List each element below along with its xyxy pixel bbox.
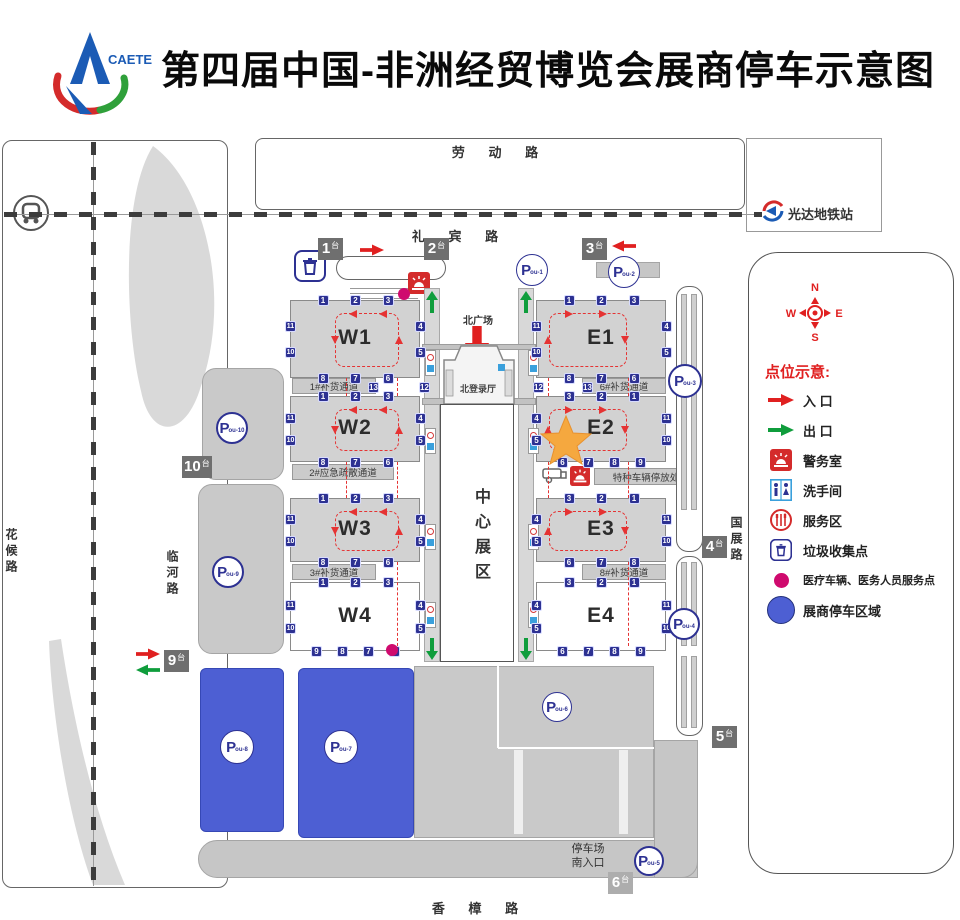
north-hall-building <box>442 344 516 406</box>
logo-text: CAETE <box>108 52 152 67</box>
route-arrow-icon <box>395 527 403 535</box>
route-arrow-icon <box>349 310 357 318</box>
parking-badge-p6: Pou-6 <box>542 692 572 722</box>
gate-6: 6台 <box>608 872 633 894</box>
dock-badge: 1 <box>318 493 329 504</box>
dock-badge: 1 <box>318 391 329 402</box>
dock-badge: 4 <box>415 413 426 424</box>
compass-e: E <box>835 308 842 320</box>
parking-badge-p10: Pou-10 <box>216 412 248 444</box>
dock-badge: 6 <box>564 557 575 568</box>
route-arrow-icon <box>599 310 607 318</box>
dock-badge: 8 <box>318 457 329 468</box>
parking-badge-p3: Pou-3 <box>668 364 702 398</box>
gate-9-suffix: 台 <box>177 652 185 663</box>
dock-badge: 5 <box>531 536 542 547</box>
dock-badge: 2 <box>350 391 361 402</box>
dock-badge: 1 <box>629 391 640 402</box>
route-arrow-icon <box>379 406 387 414</box>
dock-badge: 11 <box>285 321 296 332</box>
dock-badge: 3 <box>629 295 640 306</box>
dock-badge: 3 <box>383 493 394 504</box>
lot-divider <box>497 666 499 748</box>
route-arrow-icon <box>621 527 629 535</box>
legend-item: 医疗车辆、医务人员服务点 <box>759 565 949 595</box>
route-arrow-icon <box>379 310 387 318</box>
parking-badge-p2: Pou-2 <box>608 256 640 288</box>
dock-badge: 8 <box>609 646 620 657</box>
route-dash <box>397 462 398 498</box>
compass-s: S <box>811 332 818 343</box>
entry-arrow-cell <box>759 394 803 406</box>
road-label-xiangzhang: 香 樟 路 <box>380 898 580 917</box>
route-dash <box>548 462 549 498</box>
dock-badge: 11 <box>285 600 296 611</box>
service-area-icon <box>427 528 434 535</box>
restroom-icon <box>427 617 434 624</box>
hall-w2-route <box>335 409 399 451</box>
dock-badge: 9 <box>311 646 322 657</box>
gate-10: 10台 <box>182 456 212 478</box>
legend-title: 点位示意: <box>765 361 830 382</box>
medical-point-dot <box>386 644 398 656</box>
metro-station-logo <box>760 198 786 224</box>
route-arrow-icon <box>379 508 387 516</box>
dock-badge: 10 <box>285 623 296 634</box>
dock-badge: 7 <box>596 373 607 384</box>
dock-badge: 8 <box>564 373 575 384</box>
restroom-icon <box>427 539 434 546</box>
page-title: 第四届中国-非洲经贸博览会展商停车示意图 <box>148 40 948 96</box>
bus-lane-bar <box>691 656 697 728</box>
p-sub: ou-10 <box>229 428 245 434</box>
gate-5: 5台 <box>712 726 737 748</box>
exit-arrow-icon <box>136 664 160 676</box>
dock-badge: 8 <box>318 373 329 384</box>
dock-badge: 12 <box>419 382 430 393</box>
restroom-service-icons <box>425 524 436 550</box>
gate-9-num: 9 <box>168 650 176 672</box>
south-entrance-label-2: 南入口 <box>560 854 616 870</box>
dock-badge: 8 <box>337 646 348 657</box>
dock-badge: 12 <box>533 382 544 393</box>
exit-arrow-up-icon <box>426 291 438 313</box>
gate-2-num: 2 <box>428 238 436 260</box>
legend-item-label: 出 口 <box>803 421 833 440</box>
parking-badge-p7: Pou-7 <box>324 730 358 764</box>
dock-badge: 2 <box>350 577 361 588</box>
exit-arrow-up-icon <box>520 291 532 313</box>
metro-rail-vertical <box>90 142 97 886</box>
dock-badge: 4 <box>531 600 542 611</box>
dock-badge: 10 <box>285 536 296 547</box>
legend-panel: N S W E 点位示意: 入 口出 口警务室洗手间服务区垃圾收集点医疗车辆、医… <box>748 252 954 874</box>
dock-badge: 4 <box>415 514 426 525</box>
dock-badge: 5 <box>415 435 426 446</box>
trash-point-icon <box>770 539 792 561</box>
dock-badge: 9 <box>635 646 646 657</box>
service-area-icon <box>427 606 434 613</box>
dock-badge: 8 <box>609 457 620 468</box>
route-arrow-icon <box>395 426 403 434</box>
restroom-cell <box>759 479 803 501</box>
compass-icon: N S W E <box>783 279 847 343</box>
legend-item: 展商停车区域 <box>759 595 949 625</box>
bus-lane-bar <box>681 656 687 728</box>
dock-badge: 2 <box>596 391 607 402</box>
gate-3: 3台 <box>582 238 607 260</box>
parking-area-cell <box>759 596 803 624</box>
legend-item: 警务室 <box>759 445 949 475</box>
dock-badge: 6 <box>383 557 394 568</box>
lot-stripe <box>619 750 628 834</box>
route-arrow-icon <box>599 406 607 414</box>
gate-3-suffix: 台 <box>595 240 603 251</box>
gate-4: 4台 <box>702 536 727 558</box>
parking-badge-p8: Pou-8 <box>220 730 254 764</box>
dock-badge: 3 <box>564 391 575 402</box>
dock-badge: 6 <box>629 373 640 384</box>
dock-badge: 5 <box>415 623 426 634</box>
metro-rail-horizontal <box>4 211 762 218</box>
entry-arrow-icon <box>360 244 384 256</box>
exit-arrow-icon <box>768 424 794 436</box>
dock-badge: 7 <box>350 373 361 384</box>
dock-badge: 8 <box>629 557 640 568</box>
star-marker <box>540 414 592 466</box>
dock-badge: 1 <box>318 577 329 588</box>
dock-badge: 2 <box>596 577 607 588</box>
strip-restock-8: 8#补货通道 <box>582 564 666 580</box>
route-dash <box>346 378 347 396</box>
p-sub: ou-4 <box>682 624 695 630</box>
route-arrow-icon <box>565 310 573 318</box>
road-label-huahou: 花候路 <box>3 528 20 576</box>
gate-10-suffix: 台 <box>202 458 210 469</box>
parking-badge-p9: Pou-9 <box>212 556 244 588</box>
dock-badge: 3 <box>383 295 394 306</box>
route-arrow-icon <box>621 336 629 344</box>
gate-1: 1台 <box>318 238 343 260</box>
restroom-service-icons <box>425 350 436 376</box>
p-sub: ou-6 <box>555 707 568 713</box>
dock-badge: 13 <box>368 382 379 393</box>
dock-badge: 10 <box>661 435 672 446</box>
dock-badge: 11 <box>661 600 672 611</box>
route-arrow-icon <box>565 508 573 516</box>
hall-w3: W3123876111045 <box>290 498 420 562</box>
legend-item: 服务区 <box>759 505 949 535</box>
legend-item: 出 口 <box>759 415 949 445</box>
restroom-icon <box>770 479 792 501</box>
service-area-icon <box>427 432 434 439</box>
p-sub: ou-5 <box>647 861 660 867</box>
p-sub: ou-8 <box>235 747 248 753</box>
route-arrow-icon <box>621 426 629 434</box>
dock-badge: 4 <box>415 600 426 611</box>
greenery-blobs <box>3 141 227 886</box>
north-plaza-label: 北广场 <box>448 312 508 327</box>
parking-badge-p5: Pou-5 <box>634 846 664 876</box>
legend-item-label: 洗手间 <box>803 481 842 500</box>
dock-badge: 4 <box>661 321 672 332</box>
dock-badge: 2 <box>350 295 361 306</box>
dock-badge: 7 <box>596 557 607 568</box>
dock-badge: 2 <box>596 295 607 306</box>
dock-badge: 6 <box>557 646 568 657</box>
trash-cell <box>759 539 803 561</box>
strip-restock-6: 6#补货通道 <box>582 378 666 394</box>
dock-badge: 1 <box>629 577 640 588</box>
dock-badge: 13 <box>582 382 593 393</box>
parking-map-page: CAETE 第四届中国-非洲经贸博览会展商停车示意图 花候路 劳 动 路 礼 宾… <box>0 0 960 920</box>
dock-badge: 10 <box>285 347 296 358</box>
legend-item-label: 服务区 <box>803 511 842 530</box>
gate-6-num: 6 <box>612 872 620 894</box>
route-arrow-icon <box>565 406 573 414</box>
dock-badge: 7 <box>350 557 361 568</box>
dock-badge: 3 <box>564 577 575 588</box>
caete-logo <box>40 22 144 118</box>
service-area-icon <box>770 509 792 531</box>
service-area-icon <box>427 354 434 361</box>
dock-badge: 5 <box>531 623 542 634</box>
legend-item: 垃圾收集点 <box>759 535 949 565</box>
compass-w: W <box>786 308 797 320</box>
dock-badge: 3 <box>564 493 575 504</box>
exit-arrow-down-icon <box>520 638 532 660</box>
medical-point-icon <box>774 573 789 588</box>
hall-e4: E43216789451110 <box>536 582 666 651</box>
legend-item: 洗手间 <box>759 475 949 505</box>
center-hall-label: 中心展区 <box>468 488 492 588</box>
strip-evac-2: 2#应急疏散通道 <box>292 464 394 480</box>
restroom-icon <box>427 443 434 450</box>
legend-item-label: 入 口 <box>803 391 833 410</box>
route-arrow-icon <box>599 508 607 516</box>
p-sub: ou-2 <box>622 272 635 278</box>
dock-badge: 11 <box>661 514 672 525</box>
route-arrow-icon <box>395 336 403 344</box>
dock-badge: 3 <box>383 577 394 588</box>
hall-w2: W2123876111045 <box>290 396 420 462</box>
dock-badge: 5 <box>415 536 426 547</box>
dock-badge: 4 <box>415 321 426 332</box>
dock-badge: 10 <box>285 435 296 446</box>
service-area-icon <box>530 528 537 535</box>
north-hall-label: 北登录厅 <box>450 382 506 395</box>
dock-badge: 5 <box>661 347 672 358</box>
route-arrow-icon <box>349 508 357 516</box>
legend-item-label: 展商停车区域 <box>803 601 881 620</box>
gray-lot-south <box>414 666 654 838</box>
bus-lane-bar <box>691 294 697 510</box>
hall-w4-label: W4 <box>291 604 419 628</box>
dock-badge: 4 <box>531 514 542 525</box>
route-arrow-icon <box>544 527 552 535</box>
gate-4-num: 4 <box>706 536 714 558</box>
bus-lane-bar <box>681 294 687 510</box>
gate-3-num: 3 <box>586 238 594 260</box>
hall-w1: W1123876111045 <box>290 300 420 378</box>
hall-e4-label: E4 <box>537 604 665 628</box>
hall-e3-route <box>549 511 627 551</box>
dock-badge: 1 <box>629 493 640 504</box>
dock-badge: 6 <box>383 373 394 384</box>
medical-dot-cell <box>759 573 803 588</box>
police-office-icon <box>770 449 792 471</box>
left-park-boundary <box>2 140 228 888</box>
parking-badge-p4: Pou-4 <box>668 608 700 640</box>
dock-badge: 7 <box>363 646 374 657</box>
exhibitor-parking-icon <box>767 596 795 624</box>
p-sub: ou-7 <box>339 747 352 753</box>
exit-arrow-down-icon <box>426 638 438 660</box>
police-office-icon <box>570 466 590 486</box>
hall-e1-route <box>549 313 627 367</box>
dock-badge: 2 <box>350 493 361 504</box>
road-label-linhe: 临河路 <box>164 550 181 598</box>
medical-point-dot <box>398 288 410 300</box>
route-arrow-icon <box>331 426 339 434</box>
road-label-guozhan: 国展路 <box>728 516 745 564</box>
road-label-libin: 礼 宾 路 <box>360 226 560 245</box>
route-arrow-icon <box>331 336 339 344</box>
road-label-laodong: 劳 动 路 <box>255 142 745 161</box>
route-arrow-icon <box>349 406 357 414</box>
gate-2: 2台 <box>424 238 449 260</box>
restroom-service-icons <box>425 602 436 628</box>
dock-badge: 1 <box>564 295 575 306</box>
dock-badge: 11 <box>531 321 542 332</box>
dock-badge: 11 <box>285 514 296 525</box>
hall-e1: E1123876111045 <box>536 300 666 378</box>
p-sub: ou-9 <box>226 572 239 578</box>
legend-item: 入 口 <box>759 385 949 415</box>
dock-badge: 10 <box>531 347 542 358</box>
strip-restock-3: 3#补货通道 <box>292 564 376 580</box>
gate-5-num: 5 <box>716 726 724 748</box>
route-dash <box>628 562 629 646</box>
dock-badge: 7 <box>350 457 361 468</box>
legend-item-label: 警务室 <box>803 451 842 470</box>
gate-1-num: 1 <box>322 238 330 260</box>
entry-arrow-icon <box>136 648 160 660</box>
gate-4-suffix: 台 <box>715 538 723 549</box>
gate-6-suffix: 台 <box>621 874 629 885</box>
dock-badge: 6 <box>383 457 394 468</box>
restroom-icon <box>530 365 537 372</box>
dock-badge: 1 <box>318 295 329 306</box>
p-sub: ou-3 <box>683 381 696 387</box>
legend-item-label: 医疗车辆、医务人员服务点 <box>803 572 935 588</box>
hall-w3-route <box>335 511 399 551</box>
special-vehicle-icon <box>542 466 568 484</box>
lot-divider <box>498 747 654 749</box>
police-cell <box>759 449 803 471</box>
lot-stripe <box>514 750 523 834</box>
route-arrow-icon <box>331 527 339 535</box>
entry-arrow-icon <box>612 240 636 252</box>
metro-station-label: 光达地铁站 <box>788 204 853 223</box>
legend-item-label: 垃圾收集点 <box>803 541 868 560</box>
compass-n: N <box>811 282 819 294</box>
strip-restock-1: 1#补货通道 <box>292 378 376 394</box>
gate-9: 9台 <box>164 650 189 672</box>
gate-10-num: 10 <box>184 456 201 478</box>
route-dash <box>346 462 347 498</box>
dock-badge: 5 <box>415 347 426 358</box>
hall-w1-route <box>335 313 399 367</box>
dock-badge: 8 <box>318 557 329 568</box>
restroom-service-icons <box>425 428 436 454</box>
service-cell <box>759 509 803 531</box>
parking-badge-p1: Pou-1 <box>516 254 548 286</box>
dock-badge: 2 <box>596 493 607 504</box>
entry-arrow-icon <box>768 394 794 406</box>
route-dash <box>397 378 398 396</box>
legend-items: 入 口出 口警务室洗手间服务区垃圾收集点医疗车辆、医务人员服务点展商停车区域 <box>759 385 949 625</box>
gate-5-suffix: 台 <box>725 728 733 739</box>
gate-1-suffix: 台 <box>331 240 339 251</box>
restroom-icon <box>427 365 434 372</box>
route-dash <box>397 562 398 646</box>
hall-e3: E3321678451110 <box>536 498 666 562</box>
dock-badge: 11 <box>285 413 296 424</box>
dock-badge: 11 <box>661 413 672 424</box>
route-dash <box>548 378 549 396</box>
dock-badge: 9 <box>635 457 646 468</box>
route-arrow-icon <box>544 336 552 344</box>
dock-badge: 3 <box>383 391 394 402</box>
dock-badge: 10 <box>661 536 672 547</box>
dock-badge: 7 <box>583 646 594 657</box>
p-sub: ou-1 <box>530 270 543 276</box>
gate-2-suffix: 台 <box>437 240 445 251</box>
hall-w4: W41239876111045 <box>290 582 420 651</box>
exit-arrow-cell <box>759 424 803 436</box>
